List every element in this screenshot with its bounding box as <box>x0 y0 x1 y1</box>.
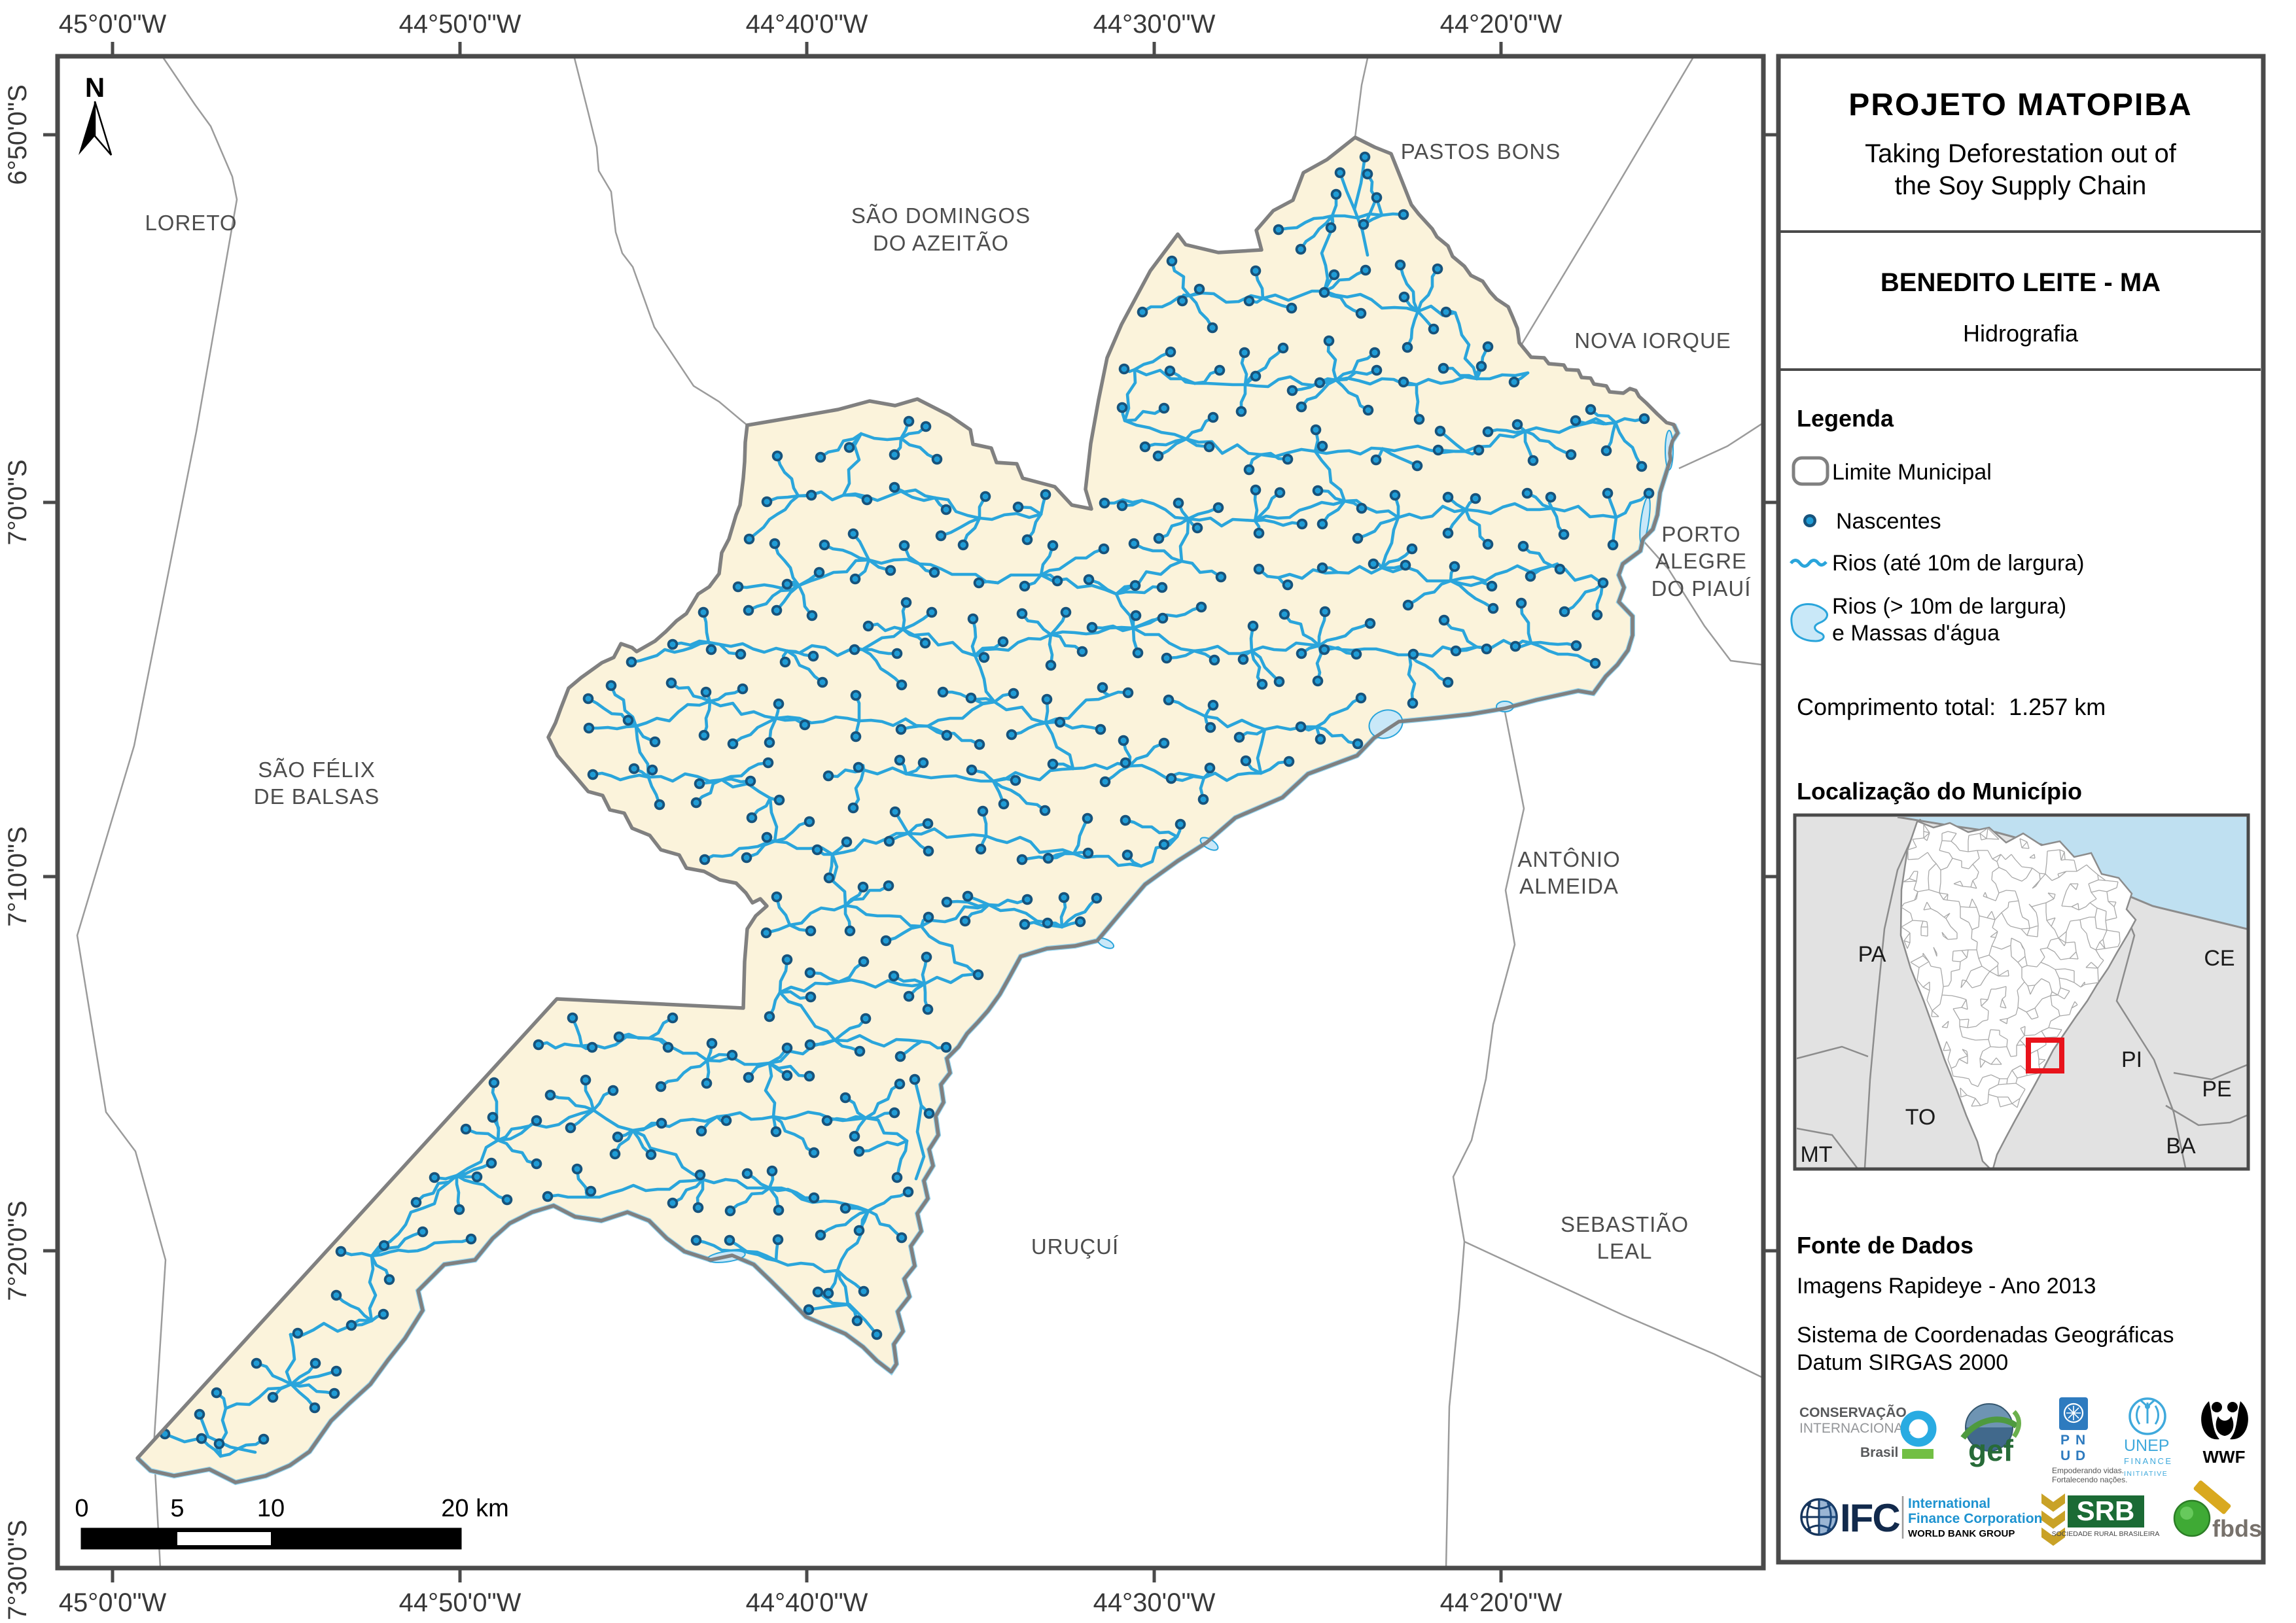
svg-text:INTERNACIONAL: INTERNACIONAL <box>1799 1421 1911 1436</box>
svg-text:SOCIEDADE RURAL BRASILEIRA: SOCIEDADE RURAL BRASILEIRA <box>2052 1530 2160 1538</box>
svg-text:Limite Municipal: Limite Municipal <box>1832 460 1992 485</box>
svg-text:SÃO FÉLIX: SÃO FÉLIX <box>258 758 376 782</box>
svg-text:44°40'0"W: 44°40'0"W <box>746 1588 868 1617</box>
svg-text:PI: PI <box>2121 1047 2142 1072</box>
svg-text:44°50'0"W: 44°50'0"W <box>399 1588 521 1617</box>
svg-text:SRB: SRB <box>2077 1495 2135 1526</box>
svg-text:Comprimento total: 1.257 km: Comprimento total: 1.257 km <box>1797 693 2106 720</box>
svg-text:Hidrografia: Hidrografia <box>1963 320 2079 347</box>
svg-text:Legenda: Legenda <box>1797 405 1894 432</box>
svg-text:CONSERVAÇÃO: CONSERVAÇÃO <box>1799 1405 1907 1420</box>
svg-text:INITIATIVE: INITIATIVE <box>2124 1470 2168 1478</box>
svg-text:IFC: IFC <box>1840 1496 1899 1540</box>
svg-text:PROJETO MATOPIBA: PROJETO MATOPIBA <box>1848 88 2192 122</box>
svg-text:D: D <box>2075 1448 2085 1463</box>
svg-text:PORTO: PORTO <box>1661 522 1740 546</box>
svg-text:URUÇUÍ: URUÇUÍ <box>1031 1234 1119 1259</box>
svg-text:7°20'0"S: 7°20'0"S <box>3 1200 32 1301</box>
svg-text:Finance Corporation: Finance Corporation <box>1908 1511 2042 1526</box>
svg-text:Fortalecendo nações.: Fortalecendo nações. <box>2052 1475 2127 1484</box>
svg-text:NOVA IORQUE: NOVA IORQUE <box>1574 328 1731 353</box>
svg-text:Brasil: Brasil <box>1860 1445 1898 1460</box>
svg-text:DO PIAUÍ: DO PIAUÍ <box>1651 576 1752 601</box>
svg-text:CE: CE <box>2204 946 2234 971</box>
svg-text:Taking Deforestation out of: Taking Deforestation out of <box>1865 139 2177 168</box>
svg-text:Nascentes: Nascentes <box>1836 509 1941 534</box>
svg-text:WWF: WWF <box>2203 1447 2246 1467</box>
svg-text:44°50'0"W: 44°50'0"W <box>399 10 521 39</box>
svg-text:10: 10 <box>257 1495 285 1522</box>
svg-text:WORLD BANK GROUP: WORLD BANK GROUP <box>1908 1528 2015 1539</box>
svg-text:fbds: fbds <box>2212 1515 2262 1542</box>
svg-text:44°30'0"W: 44°30'0"W <box>1093 10 1216 39</box>
svg-text:LORETO: LORETO <box>145 211 237 235</box>
svg-text:SÃO DOMINGOS: SÃO DOMINGOS <box>851 203 1031 228</box>
svg-text:gef: gef <box>1968 1433 2014 1467</box>
svg-text:FINANCE: FINANCE <box>2124 1456 2173 1466</box>
svg-text:ALEGRE: ALEGRE <box>1655 549 1747 573</box>
svg-text:Localização do Município: Localização do Município <box>1797 778 2082 805</box>
svg-text:7°30'0"S: 7°30'0"S <box>3 1520 32 1620</box>
svg-text:LEAL: LEAL <box>1597 1239 1653 1263</box>
svg-text:UNEP: UNEP <box>2124 1437 2169 1455</box>
svg-text:Imagens Rapideye - Ano 2013: Imagens Rapideye - Ano 2013 <box>1797 1274 2096 1299</box>
svg-text:U: U <box>2060 1448 2070 1463</box>
svg-text:0: 0 <box>75 1495 88 1522</box>
svg-text:Rios (até 10m de largura): Rios (até 10m de largura) <box>1832 551 2085 576</box>
svg-text:BENEDITO LEITE - MA: BENEDITO LEITE - MA <box>1881 268 2161 297</box>
svg-text:45°0'0"W: 45°0'0"W <box>59 10 167 39</box>
svg-text:6°50'0"S: 6°50'0"S <box>3 84 32 185</box>
svg-text:SEBASTIÃO: SEBASTIÃO <box>1561 1212 1689 1236</box>
svg-text:Datum SIRGAS 2000: Datum SIRGAS 2000 <box>1797 1350 2008 1375</box>
svg-text:ALMEIDA: ALMEIDA <box>1519 874 1619 898</box>
svg-text:N: N <box>85 72 105 103</box>
svg-text:MT: MT <box>1800 1142 1832 1167</box>
svg-text:Empoderando vidas.: Empoderando vidas. <box>2052 1466 2124 1475</box>
svg-text:44°30'0"W: 44°30'0"W <box>1093 1588 1216 1617</box>
svg-text:45°0'0"W: 45°0'0"W <box>59 1588 167 1617</box>
svg-text:7°10'0"S: 7°10'0"S <box>3 826 32 927</box>
svg-text:DE BALSAS: DE BALSAS <box>254 784 380 809</box>
svg-text:N: N <box>2075 1433 2085 1448</box>
svg-text:44°20'0"W: 44°20'0"W <box>1440 1588 1563 1617</box>
svg-text:PA: PA <box>1858 942 1886 967</box>
svg-text:DO AZEITÃO: DO AZEITÃO <box>873 231 1009 255</box>
svg-text:20 km: 20 km <box>441 1495 508 1522</box>
svg-text:e Massas d'água: e Massas d'água <box>1832 621 2000 646</box>
svg-text:ANTÔNIO: ANTÔNIO <box>1517 847 1620 871</box>
svg-text:TO: TO <box>1905 1105 1936 1130</box>
svg-text:Rios (> 10m de largura): Rios (> 10m de largura) <box>1832 594 2066 619</box>
svg-text:7°0'0"S: 7°0'0"S <box>3 459 32 545</box>
svg-text:P: P <box>2060 1433 2070 1448</box>
svg-text:PASTOS BONS: PASTOS BONS <box>1401 139 1561 164</box>
svg-text:44°20'0"W: 44°20'0"W <box>1440 10 1563 39</box>
svg-text:BA: BA <box>2166 1134 2196 1159</box>
svg-text:International: International <box>1908 1496 1990 1511</box>
svg-text:Fonte de Dados: Fonte de Dados <box>1797 1232 1973 1259</box>
svg-text:5: 5 <box>170 1495 184 1522</box>
svg-text:PE: PE <box>2202 1077 2231 1102</box>
svg-text:Sistema de Coordenadas Geográf: Sistema de Coordenadas Geográficas <box>1797 1323 2174 1348</box>
svg-text:the Soy Supply Chain: the Soy Supply Chain <box>1895 171 2147 200</box>
svg-text:44°40'0"W: 44°40'0"W <box>746 10 868 39</box>
